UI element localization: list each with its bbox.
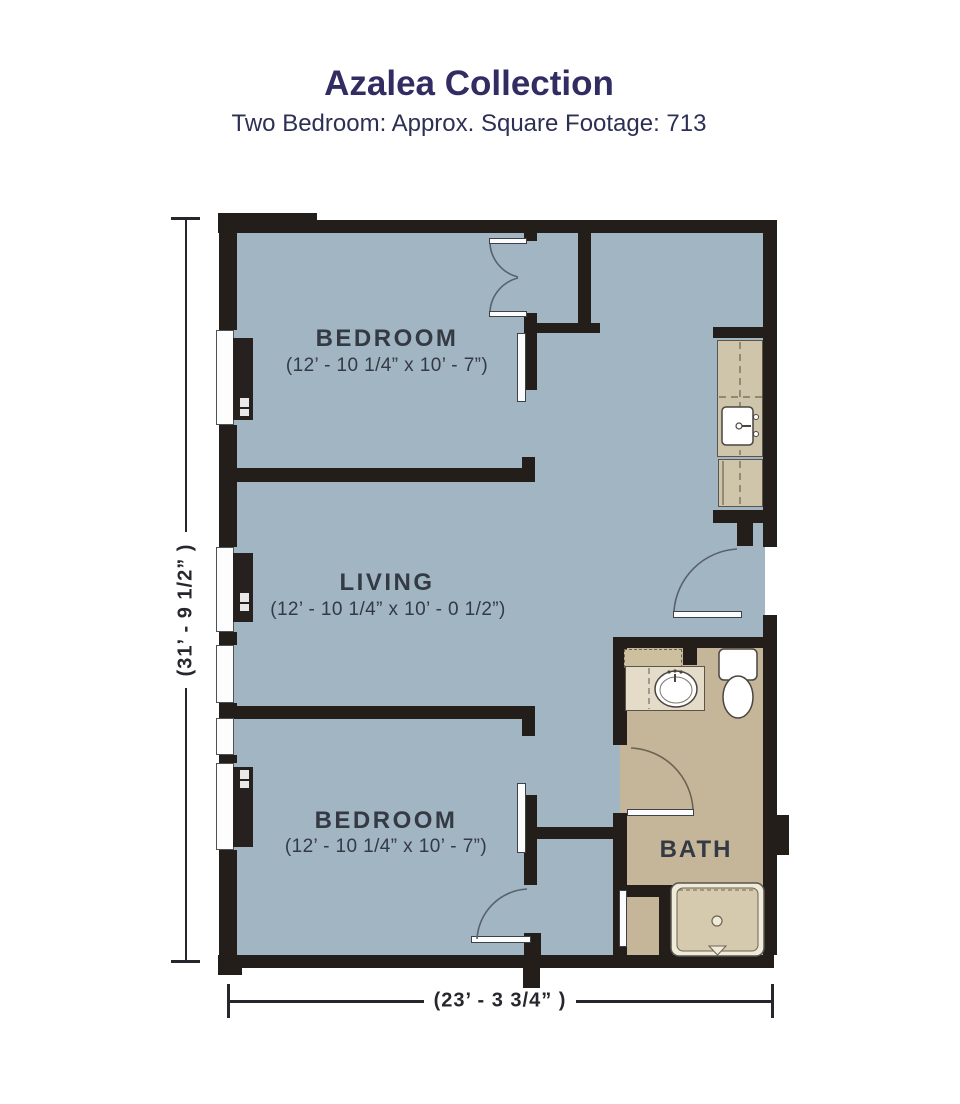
page-subtitle: Two Bedroom: Approx. Square Footage: 713 xyxy=(232,110,707,138)
wall-closet1-bottom xyxy=(537,323,600,333)
floor-plan-page: Azalea Collection Two Bedroom: Approx. S… xyxy=(0,0,960,1104)
wall xyxy=(763,228,777,547)
blind-mark xyxy=(240,398,249,407)
bath-door-leaf xyxy=(627,809,694,816)
blind-mark xyxy=(240,409,249,416)
kitchen-counter xyxy=(717,340,763,457)
blind-mark xyxy=(240,593,249,602)
linen-door-leaf xyxy=(619,890,627,947)
height-dim-tick xyxy=(171,217,200,220)
wall xyxy=(218,955,242,975)
bedroom2-label: BEDROOM xyxy=(315,807,458,835)
entry-door-leaf xyxy=(673,611,742,618)
bedroom2-door-leaf xyxy=(517,783,526,853)
wall xyxy=(218,955,774,968)
wall xyxy=(218,220,777,233)
wall xyxy=(763,615,777,955)
height-dim-line xyxy=(185,688,187,962)
wall xyxy=(777,815,789,855)
window-blind-box xyxy=(233,338,253,420)
bedroom1-door-leaf xyxy=(517,333,526,402)
wall xyxy=(219,850,237,955)
width-dim-label: (23’ - 3 3/4” ) xyxy=(434,990,567,1013)
window-blind-box xyxy=(233,553,253,622)
bedroom1-dimensions: (12’ - 10 1/4” x 10’ - 7”) xyxy=(286,355,488,377)
wall xyxy=(737,523,753,546)
kitchen-cabinet xyxy=(718,459,763,507)
wall xyxy=(219,233,237,330)
closet-double-door-leaf xyxy=(489,238,527,244)
blind-mark xyxy=(240,770,249,779)
width-dim-tick xyxy=(771,984,774,1018)
height-dim-label: (31’ - 9 1/2” ) xyxy=(175,544,198,677)
wall-closet2-top xyxy=(530,827,615,839)
height-dim-line xyxy=(185,218,187,532)
wall xyxy=(218,213,317,220)
wall-bath-top xyxy=(613,637,777,648)
window xyxy=(216,718,234,755)
wall-bedroom1-living xyxy=(228,468,535,482)
wall xyxy=(522,719,535,736)
wall-closet1-east xyxy=(578,228,591,323)
closet-double-door-leaf xyxy=(489,311,527,317)
bedroom2-dimensions: (12’ - 10 1/4” x 10’ - 7”) xyxy=(285,836,487,858)
width-dim-line xyxy=(228,1000,424,1003)
window xyxy=(216,330,234,425)
wall-kitchen-top xyxy=(713,327,777,338)
wall xyxy=(219,755,237,763)
wall xyxy=(523,955,540,988)
living-label: LIVING xyxy=(339,569,434,597)
height-dim-tick xyxy=(171,960,200,963)
window xyxy=(216,763,234,850)
width-dim-tick xyxy=(227,984,230,1018)
bedroom1-label: BEDROOM xyxy=(316,325,459,353)
blind-mark xyxy=(240,781,249,788)
wall-kitchen-bottom xyxy=(713,510,777,523)
wall xyxy=(219,632,237,645)
width-dim-line xyxy=(576,1000,772,1003)
window xyxy=(216,547,234,632)
wall xyxy=(522,457,535,468)
wall xyxy=(683,648,697,665)
wall-linen-top xyxy=(623,885,673,897)
blind-mark xyxy=(240,604,249,611)
page-title: Azalea Collection xyxy=(324,64,614,104)
window xyxy=(216,645,234,703)
bath-vanity xyxy=(625,666,705,711)
closet2-door-leaf xyxy=(471,936,531,943)
bath-label: BATH xyxy=(660,836,733,864)
wall xyxy=(219,425,237,547)
living-dimensions: (12’ - 10 1/4” x 10’ - 0 1/2”) xyxy=(270,599,506,621)
wall-living-bedroom2 xyxy=(228,706,535,719)
window-blind-box xyxy=(233,767,253,847)
